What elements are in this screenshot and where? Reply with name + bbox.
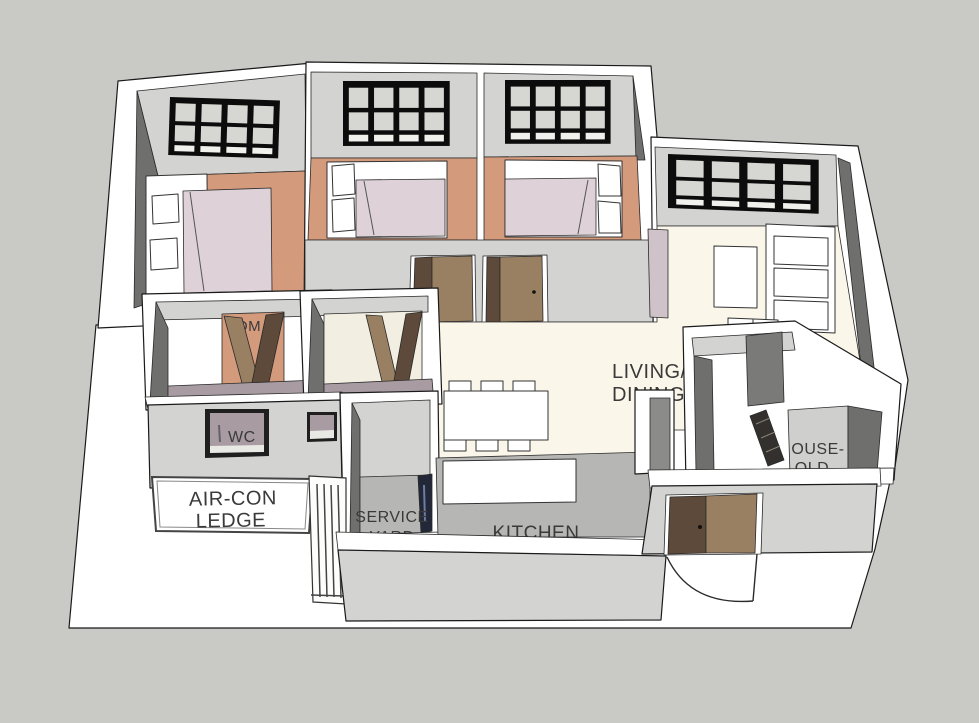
front-wall-west <box>336 532 666 621</box>
dining-chair <box>481 381 503 391</box>
master-bedroom <box>98 63 322 328</box>
aircon-ledge-sign: AIR-CON LEDGE <box>152 477 313 533</box>
bathroom-front-wall: WC <box>145 392 342 488</box>
dining-table <box>444 391 548 440</box>
label-aircon-line1: AIR-CON <box>189 487 277 511</box>
floor-plan-canvas: LIVING/ DINING OM WC <box>0 0 979 723</box>
bed-mattress <box>183 188 272 293</box>
bedrooms-2-3 <box>304 62 659 324</box>
bed-pillow <box>598 201 621 233</box>
bed-pillow <box>332 164 355 196</box>
front-wall-entrance <box>642 468 881 555</box>
bed-mattress <box>505 178 596 236</box>
dining-chair <box>508 440 530 451</box>
entrance-door <box>664 493 763 555</box>
bed-pillow <box>152 194 179 224</box>
bed-pillow <box>332 198 355 232</box>
bedroom2-window-icon <box>343 81 450 146</box>
service-yard: SERVICE YARD <box>340 391 440 551</box>
living-room-window-icon <box>668 154 819 214</box>
coffee-table <box>714 246 757 308</box>
sofa-cushion <box>774 236 828 266</box>
dining-chair <box>449 381 471 391</box>
label-aircon-line2: LEDGE <box>196 509 267 532</box>
hall-wall-stub <box>635 390 674 474</box>
sofa <box>766 224 835 333</box>
tv-console <box>648 229 668 318</box>
label-wc: WC <box>228 429 256 446</box>
dining-set <box>444 381 548 451</box>
kitchen: KITCHEN <box>436 452 650 544</box>
dining-chair <box>444 440 466 451</box>
label-shelter-line1: OUSE- <box>791 441 844 458</box>
label-service-line1: SERVICE <box>355 509 428 526</box>
dining-chair <box>476 440 498 451</box>
bedroom3-door <box>482 255 548 323</box>
sofa-cushion <box>774 268 828 298</box>
master-bed <box>146 174 272 300</box>
label-living-dining-line1: LIVING/ <box>612 361 687 383</box>
bed-pillow <box>150 238 178 270</box>
bed-pillow <box>598 164 621 196</box>
dining-chair <box>513 381 535 391</box>
kitchen-counter <box>443 459 576 504</box>
bedroom3-bed <box>505 160 622 237</box>
bathroom-vent-window <box>307 412 337 442</box>
floor-plan-render: LIVING/ DINING OM WC <box>0 0 979 723</box>
bedroom2-bed <box>327 161 447 238</box>
bedroom3-window-icon <box>505 80 611 144</box>
common-bathroom <box>300 288 442 406</box>
wc-window: WC <box>205 409 269 458</box>
master-bedroom-window-icon <box>168 97 280 158</box>
door-handle-icon <box>698 525 702 529</box>
door-handle-icon <box>532 290 536 294</box>
